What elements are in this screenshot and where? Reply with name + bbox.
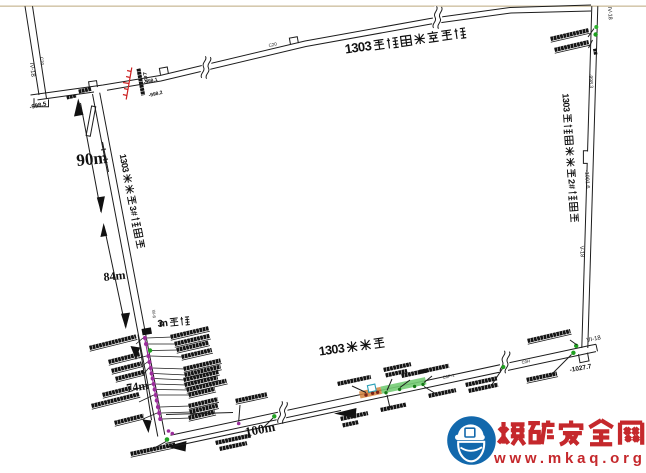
svg-text:www.mkaq.org: www.mkaq.org xyxy=(493,450,646,467)
svg-text:-998.3: -998.3 xyxy=(587,74,594,89)
svg-text:W-6: W-6 xyxy=(151,310,157,319)
svg-text:3m: 3m xyxy=(157,318,169,330)
svg-text:V-18: V-18 xyxy=(578,246,585,258)
svg-text:84m: 84m xyxy=(103,268,126,284)
svg-text:90m: 90m xyxy=(75,148,108,170)
svg-text:3#: 3# xyxy=(128,205,140,217)
svg-text:1303: 1303 xyxy=(560,93,571,112)
svg-text:IV-18: IV-18 xyxy=(606,7,613,20)
svg-text:2#: 2# xyxy=(566,179,577,190)
svg-text:C20: C20 xyxy=(39,57,45,66)
